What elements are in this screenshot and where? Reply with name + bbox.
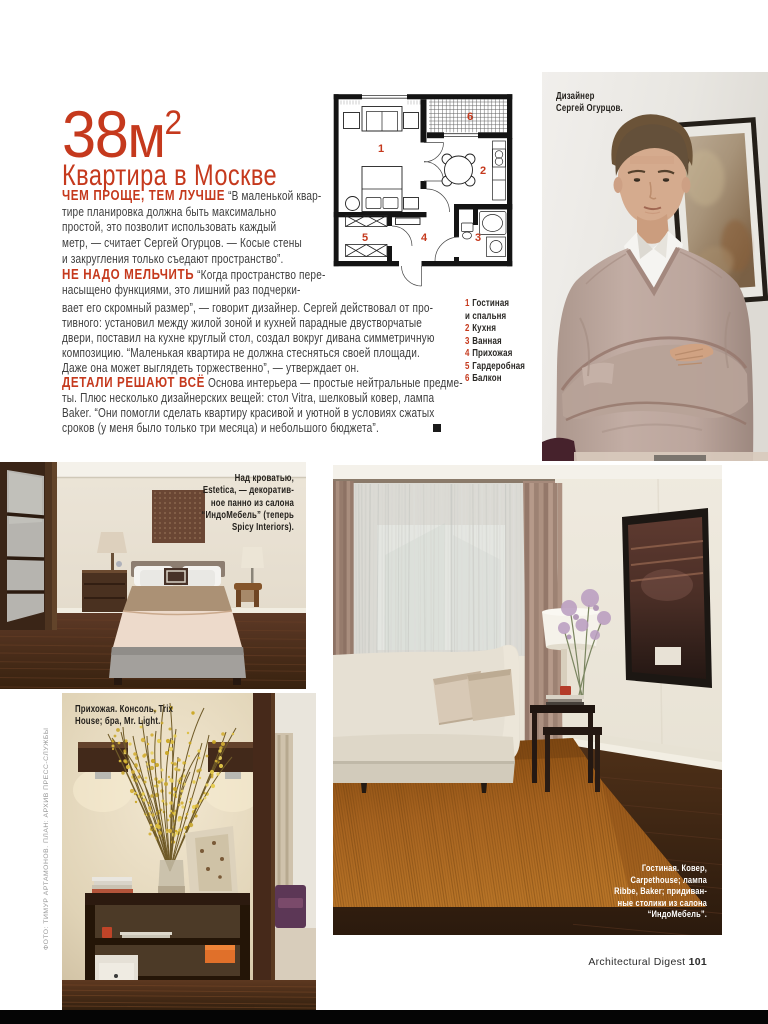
svg-text:1: 1 [378,143,384,155]
svg-text:5: 5 [362,232,368,244]
svg-text:4: 4 [421,232,428,244]
svg-text:3: 3 [475,232,481,244]
svg-text:6: 6 [467,111,473,123]
svg-text:2: 2 [480,165,486,177]
